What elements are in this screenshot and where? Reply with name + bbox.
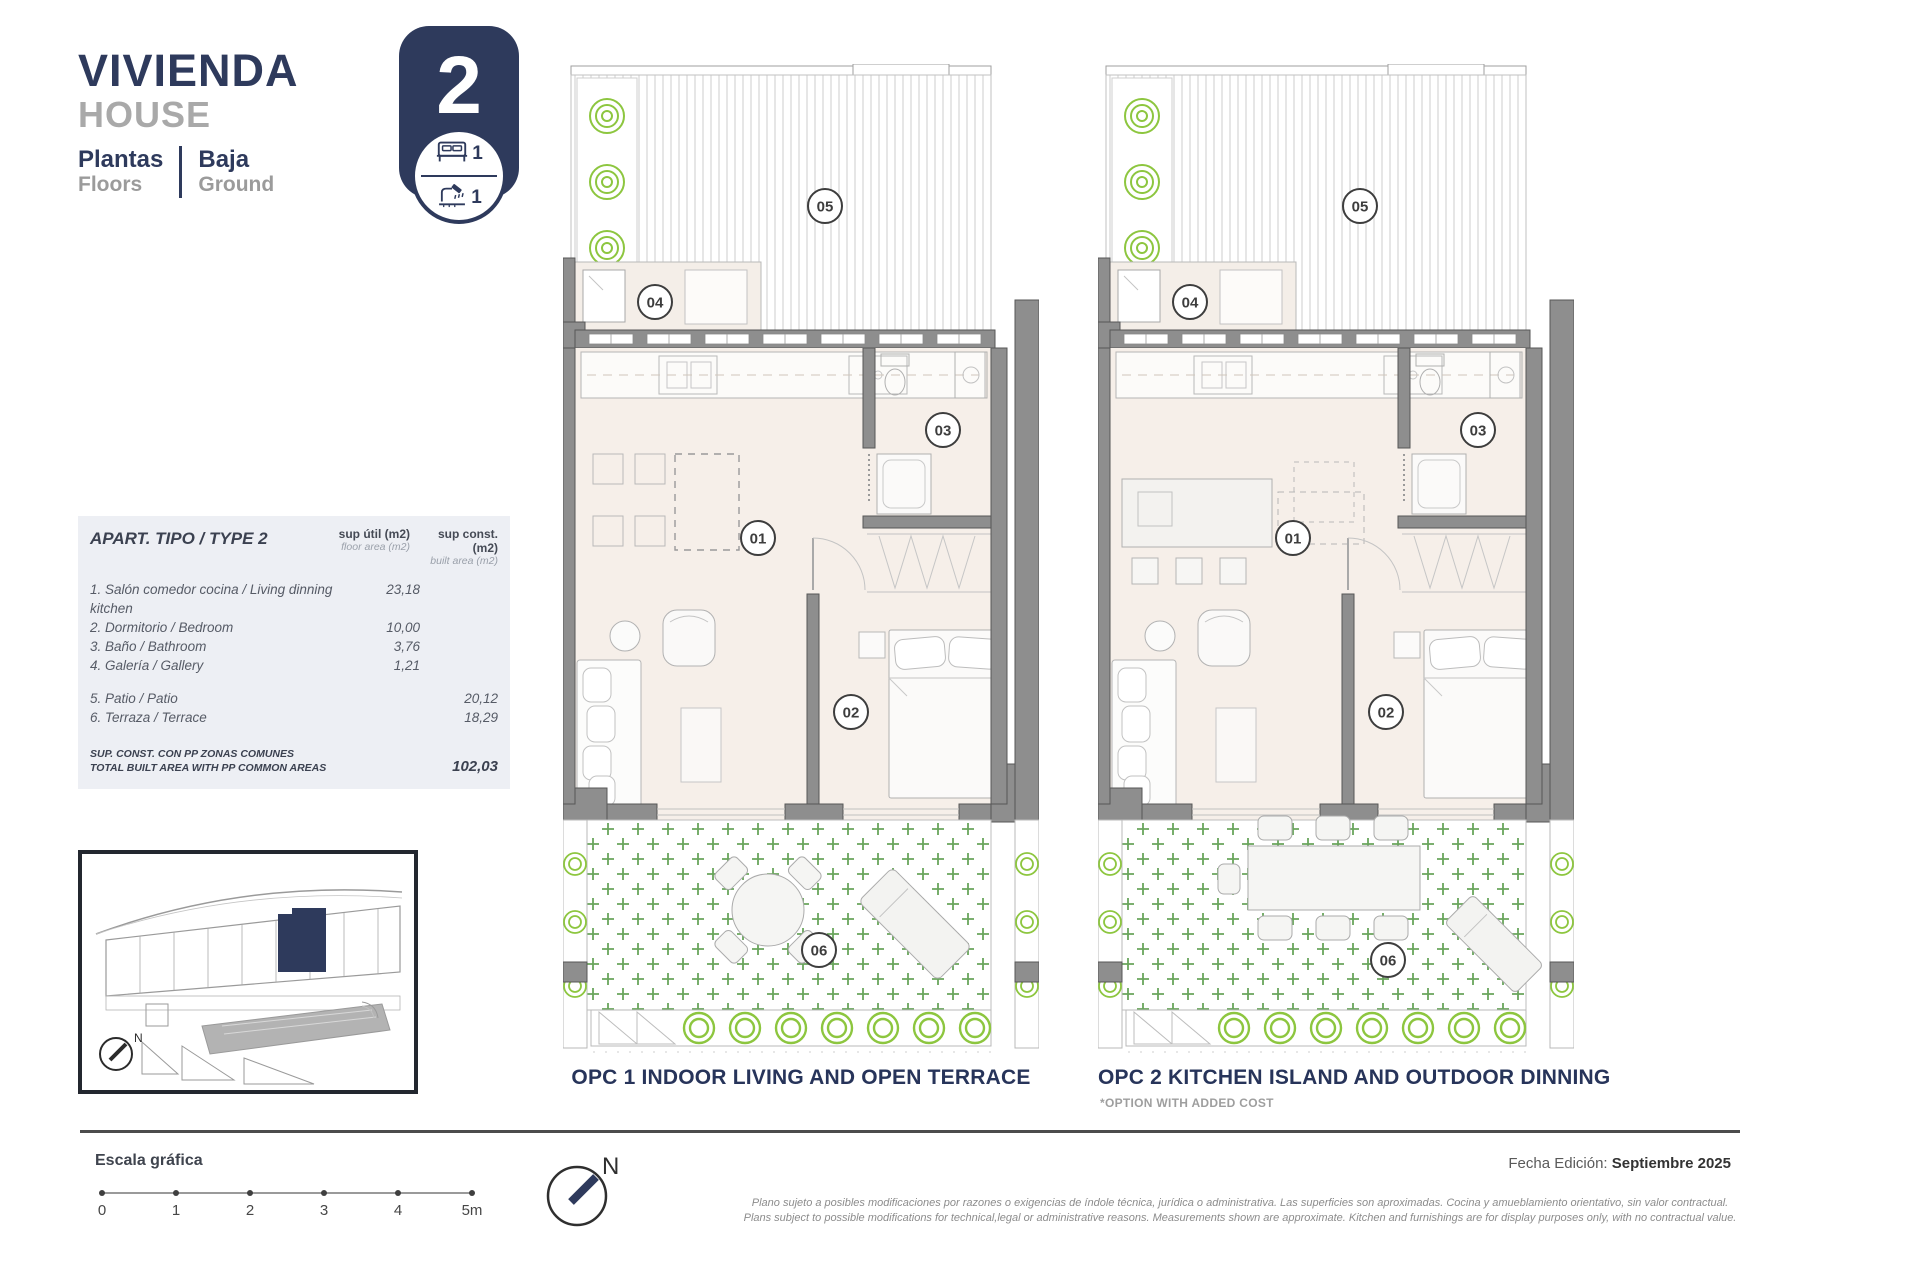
date-label: Fecha Edición: — [1508, 1155, 1607, 1172]
room-label-02: 02 — [1369, 695, 1403, 729]
svg-text:04: 04 — [647, 295, 664, 312]
north-compass: N — [540, 1152, 626, 1241]
facade-wall — [575, 330, 995, 348]
unit-badge: 2 1 — [399, 26, 519, 198]
gallery-area: 04 — [575, 262, 761, 330]
wall — [1526, 348, 1542, 804]
total-label-es: SUP. CONST. CON PP ZONAS COMUNES — [90, 747, 362, 761]
disclaimer-en: Plans subject to possible modifications … — [690, 1211, 1790, 1226]
areas-title: APART. TIPO / TYPE 2 — [90, 527, 322, 549]
north-label: N — [602, 1153, 619, 1180]
room-label-01: 01 — [741, 521, 775, 555]
party-wall — [1550, 300, 1574, 824]
plan-sheet: VIVIENDA HOUSE Plantas Floors Baja Groun… — [0, 0, 1920, 1280]
room-label-01: 01 — [1276, 521, 1310, 555]
scale-tick-label: 0 — [98, 1202, 106, 1219]
kitchen-area — [1116, 352, 1520, 398]
unit-stats-circle: 1 1 — [411, 128, 507, 224]
area-row: 5. Patio / Patio20,12 — [90, 689, 498, 708]
wall — [563, 348, 575, 804]
opc1-caption: OPC 1 INDOOR LIVING AND OPEN TERRACE — [563, 1066, 1039, 1090]
facade-wall — [1110, 330, 1530, 348]
legal-disclaimer: Plano sujeto a posibles modificaciones p… — [690, 1196, 1790, 1226]
scale-tick-label: 5m — [462, 1202, 483, 1219]
scale-tick-label: 2 — [246, 1202, 254, 1219]
area-row: 3. Baño / Bathroom3,76 — [90, 637, 498, 656]
opc2-note: *OPTION WITH ADDED COST — [1100, 1096, 1274, 1110]
title-en: HOUSE — [78, 96, 299, 134]
gallery-area: 04 — [1110, 262, 1296, 330]
svg-text:03: 03 — [1470, 423, 1487, 440]
floors-divider — [179, 146, 182, 198]
room-label-05: 05 — [808, 189, 842, 223]
scale-tick-dot — [99, 1190, 105, 1196]
unit-number: 2 — [399, 44, 519, 128]
highlighted-unit — [278, 908, 326, 972]
scale-tick-label: 1 — [172, 1202, 180, 1219]
svg-text:05: 05 — [817, 199, 834, 216]
site-plan: N — [78, 850, 418, 1094]
scale-tick-dot — [395, 1190, 401, 1196]
areas-total-row: SUP. CONST. CON PP ZONAS COMUNES TOTAL B… — [90, 747, 498, 775]
party-wall — [1015, 300, 1039, 824]
room-label-04: 04 — [638, 285, 672, 319]
bedrooms-count: 1 — [472, 143, 483, 165]
footer-divider — [80, 1130, 1740, 1133]
room-label-03: 03 — [926, 413, 960, 447]
edition-date: Fecha Edición: Septiembre 2025 — [1508, 1155, 1731, 1172]
svg-text:03: 03 — [935, 423, 952, 440]
total-value: 102,03 — [362, 758, 498, 775]
scale-label: Escala gráfica — [95, 1152, 203, 1170]
areas-rows-util: 1. Salón comedor cocina / Living dinning… — [90, 580, 498, 675]
floors-row: Plantas Floors Baja Ground — [78, 146, 274, 198]
scale-tick-dot — [173, 1190, 179, 1196]
site-north-icon: N — [100, 1031, 143, 1070]
area-row: 2. Dormitorio / Bedroom10,00 — [90, 618, 498, 637]
scale-line — [102, 1192, 472, 1194]
room-label-04: 04 — [1173, 285, 1207, 319]
floor-plan-opc2: 05 04 — [1098, 64, 1574, 1056]
svg-text:N: N — [134, 1031, 143, 1045]
svg-text:02: 02 — [1378, 705, 1395, 722]
svg-text:06: 06 — [1380, 953, 1397, 970]
svg-text:05: 05 — [1352, 199, 1369, 216]
room-label-06: 06 — [802, 933, 836, 967]
planter-row — [591, 1010, 991, 1052]
scale-tick-label: 4 — [394, 1202, 402, 1219]
page-title: VIVIENDA HOUSE — [78, 48, 299, 134]
svg-text:01: 01 — [750, 531, 767, 548]
title-es: VIVIENDA — [78, 48, 299, 94]
col-head-util: sup útil (m2) floor area (m2) — [322, 527, 410, 554]
floors-label-es: Plantas — [78, 147, 163, 173]
svg-text:04: 04 — [1182, 295, 1199, 312]
disclaimer-es: Plano sujeto a posibles modificaciones p… — [690, 1196, 1790, 1211]
areas-table: APART. TIPO / TYPE 2 sup útil (m2) floor… — [78, 516, 510, 789]
graphic-scale: 012345m — [95, 1186, 481, 1226]
wall — [1098, 348, 1110, 804]
bathrooms-count: 1 — [471, 187, 482, 209]
opc2-caption: OPC 2 KITCHEN ISLAND AND OUTDOOR DINNING — [1098, 1066, 1618, 1090]
scale-tick-dot — [469, 1190, 475, 1196]
svg-text:01: 01 — [1285, 531, 1302, 548]
area-row: 6. Terraza / Terrace18,29 — [90, 708, 498, 727]
scale-tick-dot — [247, 1190, 253, 1196]
wall — [1098, 258, 1110, 330]
date-value: Septiembre 2025 — [1612, 1155, 1731, 1172]
shower-icon — [436, 184, 468, 213]
areas-rows-const: 5. Patio / Patio20,126. Terraza / Terrac… — [90, 689, 498, 727]
room-label-06: 06 — [1371, 943, 1405, 977]
floor-plan-opc1: 05 04 01 — [563, 64, 1039, 1056]
kitchen-area — [581, 352, 985, 398]
level-label-en: Ground — [198, 173, 274, 197]
wall — [563, 258, 575, 330]
area-row: 4. Galería / Gallery1,21 — [90, 656, 498, 675]
wall — [991, 348, 1007, 804]
scale-tick-dot — [321, 1190, 327, 1196]
total-label-en: TOTAL BUILT AREA WITH PP COMMON AREAS — [90, 761, 362, 775]
col-head-const: sup const. (m2) built area (m2) — [410, 527, 498, 568]
floors-label-en: Floors — [78, 173, 163, 197]
room-label-03: 03 — [1461, 413, 1495, 447]
svg-text:06: 06 — [811, 943, 828, 960]
planter-row — [1126, 1010, 1526, 1052]
area-row: 1. Salón comedor cocina / Living dinning… — [90, 580, 498, 618]
room-label-05: 05 — [1343, 189, 1377, 223]
svg-text:02: 02 — [843, 705, 860, 722]
level-label-es: Baja — [198, 147, 274, 173]
room-label-02: 02 — [834, 695, 868, 729]
scale-tick-label: 3 — [320, 1202, 328, 1219]
bed-icon — [435, 139, 469, 170]
